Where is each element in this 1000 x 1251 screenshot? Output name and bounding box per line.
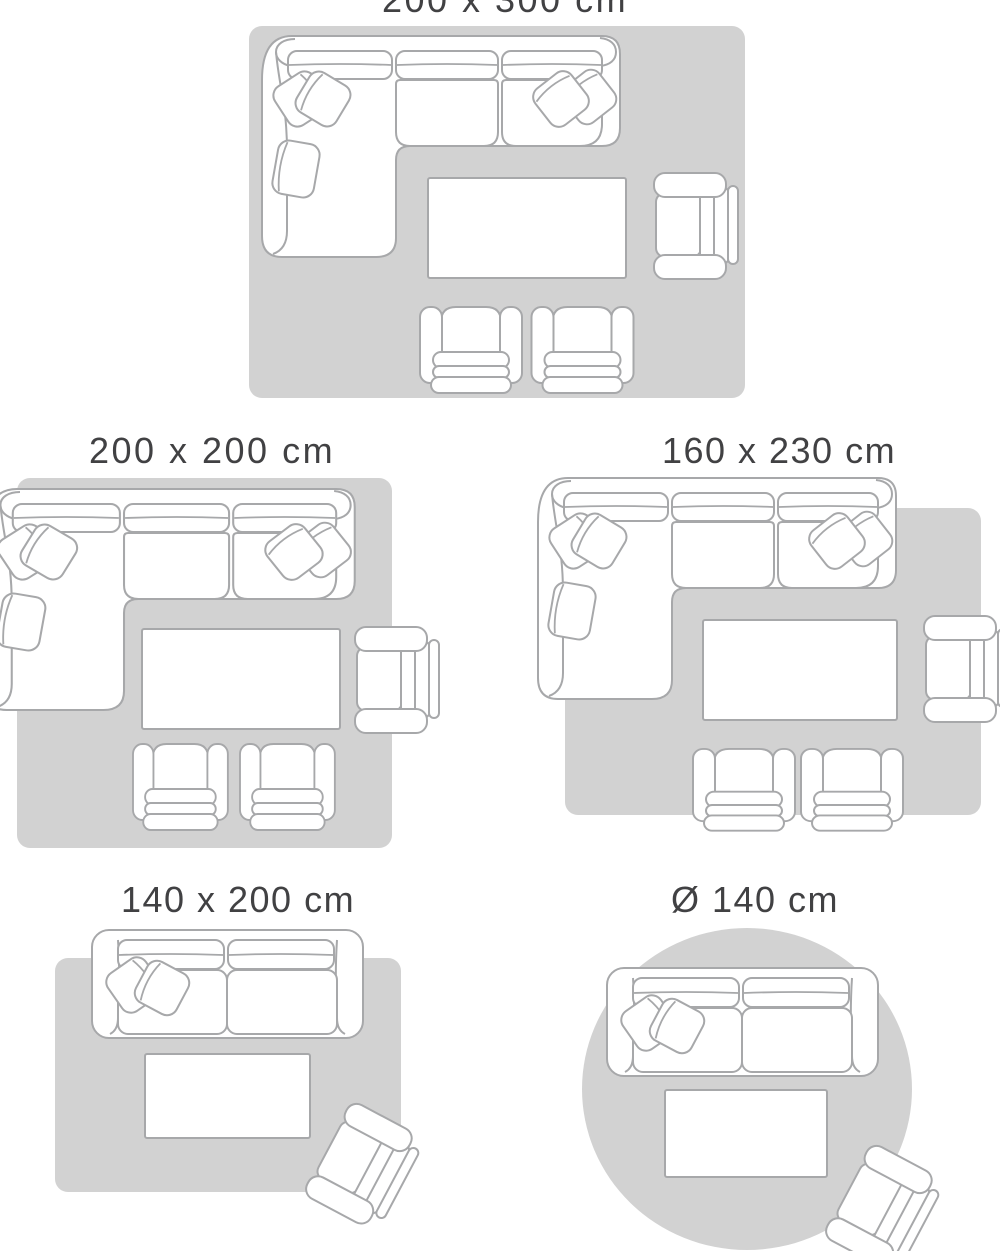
svg-text:200 x 300 cm: 200 x 300 cm [382, 0, 628, 20]
svg-text:Ø 140 cm: Ø 140 cm [671, 879, 839, 920]
svg-text:140 x 200 cm: 140 x 200 cm [121, 879, 355, 920]
svg-text:160 x 230 cm: 160 x 230 cm [662, 430, 896, 471]
svg-text:200 x 200 cm: 200 x 200 cm [89, 430, 335, 471]
